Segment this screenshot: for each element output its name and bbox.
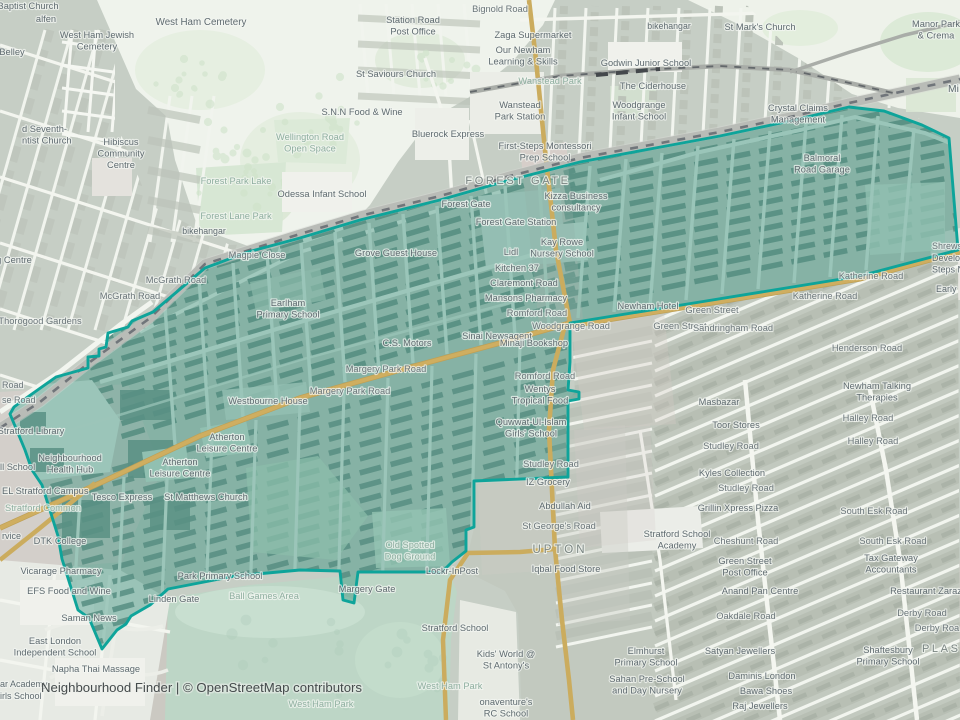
svg-text:Margery Gate: Margery Gate bbox=[339, 584, 396, 594]
svg-text:Old SpottedDog Ground: Old SpottedDog Ground bbox=[385, 540, 436, 561]
svg-text:St George's Road: St George's Road bbox=[522, 521, 596, 531]
svg-text:Mansons Pharmacy: Mansons Pharmacy bbox=[485, 293, 568, 303]
svg-text:Margery Park Road: Margery Park Road bbox=[346, 364, 427, 374]
svg-text:Restaurant Zaraz: Restaurant Zaraz bbox=[890, 586, 960, 596]
svg-text:ShaftesburyPrimary School: ShaftesburyPrimary School bbox=[856, 645, 919, 666]
svg-text:Tesco Express: Tesco Express bbox=[92, 492, 153, 502]
svg-text:Oakdale Road: Oakdale Road bbox=[716, 611, 775, 621]
svg-text:Daminis London: Daminis London bbox=[728, 671, 795, 681]
svg-text:Bignold Road: Bignold Road bbox=[472, 4, 528, 14]
svg-text:St Saviours Church: St Saviours Church bbox=[356, 69, 436, 79]
svg-text:Park Primary School: Park Primary School bbox=[178, 571, 263, 581]
svg-text:Newham Hotel: Newham Hotel bbox=[618, 301, 679, 311]
svg-text:West Ham Cemetery: West Ham Cemetery bbox=[156, 17, 247, 28]
svg-text:Halley Road: Halley Road bbox=[848, 436, 899, 446]
svg-text:Toor Stores: Toor Stores bbox=[712, 420, 760, 430]
svg-text:Forest Gate Station: Forest Gate Station bbox=[476, 217, 557, 227]
svg-text:Tax GatewayAccountants: Tax GatewayAccountants bbox=[864, 553, 918, 574]
svg-text:irls School: irls School bbox=[0, 691, 42, 701]
svg-text:Bawa Shoes: Bawa Shoes bbox=[740, 686, 793, 696]
svg-text:Forest Gate: Forest Gate bbox=[441, 199, 490, 209]
svg-text:Forest Lane Park: Forest Lane Park bbox=[200, 211, 272, 221]
svg-text:DevelopmSteps Nu: DevelopmSteps Nu bbox=[932, 253, 960, 274]
svg-text:Napha Thai Massage: Napha Thai Massage bbox=[52, 664, 140, 674]
svg-text:Sahan Pre-Schooland Day Nurser: Sahan Pre-Schooland Day Nursery bbox=[609, 674, 684, 695]
svg-text:g Centre: g Centre bbox=[0, 255, 32, 265]
svg-text:Saman News: Saman News bbox=[61, 613, 117, 623]
svg-text:bikehangar: bikehangar bbox=[647, 21, 691, 31]
svg-text:South Esk Road: South Esk Road bbox=[840, 506, 907, 516]
svg-text:Thorogood Gardens: Thorogood Gardens bbox=[0, 316, 82, 326]
svg-text:NeighbourhoodHealth Hub: NeighbourhoodHealth Hub bbox=[38, 453, 102, 474]
svg-text:bikehangar: bikehangar bbox=[182, 226, 226, 236]
svg-text:Cheshunt Road: Cheshunt Road bbox=[714, 536, 779, 546]
svg-text:ll School: ll School bbox=[0, 462, 35, 472]
svg-text:se Road: se Road bbox=[2, 395, 36, 405]
svg-text:Neighbourhood Finder | © OpenS: Neighbourhood Finder | © OpenStreetMap c… bbox=[41, 680, 362, 695]
svg-text:Romford Road: Romford Road bbox=[507, 308, 567, 318]
svg-text:Kyles Collection: Kyles Collection bbox=[699, 468, 765, 478]
svg-text:Stratford Common: Stratford Common bbox=[5, 503, 81, 513]
svg-text:EFS Food and Wine: EFS Food and Wine bbox=[27, 586, 111, 596]
svg-text:Baptist Church: Baptist Church bbox=[0, 1, 58, 11]
svg-text:West Ham Park: West Ham Park bbox=[289, 699, 354, 709]
svg-text:Grillin Xpress Pizza: Grillin Xpress Pizza bbox=[698, 503, 779, 513]
svg-text:Magpie Close: Magpie Close bbox=[229, 250, 286, 260]
svg-text:Minaji Bookshop: Minaji Bookshop bbox=[500, 338, 568, 348]
svg-text:Quwwat-Ul-IslamGirls' School: Quwwat-Ul-IslamGirls' School bbox=[496, 417, 567, 438]
svg-text:Iqbal Food Store: Iqbal Food Store bbox=[532, 564, 601, 574]
svg-text:Ball Games Area: Ball Games Area bbox=[229, 591, 300, 601]
svg-text:Lockr-InPost: Lockr-InPost bbox=[426, 566, 479, 576]
svg-text:Vicarage Pharmacy: Vicarage Pharmacy bbox=[21, 566, 102, 576]
svg-text:Wellington RoadOpen Space: Wellington RoadOpen Space bbox=[276, 132, 344, 153]
svg-text:Sandringham Road: Sandringham Road bbox=[693, 323, 773, 333]
svg-text:Mi: Mi bbox=[948, 84, 959, 95]
svg-text:Green Street: Green Street bbox=[685, 305, 739, 315]
svg-text:Kids' World @St Antony's: Kids' World @St Antony's bbox=[477, 649, 536, 670]
svg-text:Abdullah Aid: Abdullah Aid bbox=[539, 501, 591, 511]
svg-text:Masbazar: Masbazar bbox=[699, 397, 740, 407]
svg-text:PLASHE: PLASHE bbox=[922, 643, 960, 655]
svg-text:Odessa Infant School: Odessa Infant School bbox=[278, 189, 367, 199]
svg-text:Kitchen 37: Kitchen 37 bbox=[495, 263, 539, 273]
svg-text:IZ Grocery: IZ Grocery bbox=[526, 477, 570, 487]
svg-text:onaventure'sRC School: onaventure'sRC School bbox=[480, 697, 533, 718]
svg-text:alfen: alfen bbox=[36, 14, 56, 24]
svg-text:rvice: rvice bbox=[2, 531, 21, 541]
svg-text:Linden Gate: Linden Gate bbox=[149, 594, 200, 604]
svg-text:Romford Road: Romford Road bbox=[515, 371, 575, 381]
svg-text:St Matthews Church: St Matthews Church bbox=[164, 492, 248, 502]
svg-text:C.S. Motors: C.S. Motors bbox=[382, 338, 431, 348]
svg-text:Early: Early bbox=[936, 284, 957, 294]
svg-text:Derby Road: Derby Road bbox=[897, 608, 947, 618]
svg-text:Road: Road bbox=[2, 380, 24, 390]
svg-text:Studley Road: Studley Road bbox=[703, 441, 759, 451]
svg-text:The Ciderhouse: The Ciderhouse bbox=[620, 81, 686, 91]
svg-text:Derby Roa: Derby Roa bbox=[915, 623, 960, 633]
svg-text:Kizza Businessconsultancy: Kizza Businessconsultancy bbox=[544, 191, 607, 212]
svg-text:Anand Pan Centre: Anand Pan Centre bbox=[722, 586, 799, 596]
svg-text:Woodgrange Road: Woodgrange Road bbox=[532, 321, 610, 331]
svg-text:d Seventh-ntist Church: d Seventh-ntist Church bbox=[22, 124, 72, 145]
svg-text:Godwin Junior School: Godwin Junior School bbox=[601, 58, 691, 68]
svg-text:WansteadPark Station: WansteadPark Station bbox=[495, 100, 546, 121]
svg-text:Manor Park& Crema: Manor Park& Crema bbox=[912, 19, 960, 40]
svg-text:West Ham Park: West Ham Park bbox=[418, 681, 483, 691]
svg-text:Raj Jewellers: Raj Jewellers bbox=[732, 701, 788, 711]
svg-text:Henderson Road: Henderson Road bbox=[832, 343, 902, 353]
svg-text:EL Stratford Campus: EL Stratford Campus bbox=[2, 486, 89, 496]
svg-text:Grove Guest House: Grove Guest House bbox=[355, 248, 437, 258]
svg-text:Green StreetPost Office: Green StreetPost Office bbox=[718, 556, 772, 577]
svg-text:Claremont Road: Claremont Road bbox=[490, 278, 558, 288]
svg-text:Westbourne House: Westbourne House bbox=[228, 396, 307, 406]
svg-text:Lidl: Lidl bbox=[504, 247, 518, 257]
svg-text:Satyan Jewellers: Satyan Jewellers bbox=[705, 646, 776, 656]
svg-text:Stratford School: Stratford School bbox=[422, 623, 489, 633]
svg-text:Studley Road: Studley Road bbox=[718, 483, 774, 493]
svg-text:DTK College: DTK College bbox=[34, 536, 87, 546]
svg-text:Crystal ClaimsManagement: Crystal ClaimsManagement bbox=[768, 103, 828, 124]
svg-text:Studley Road: Studley Road bbox=[523, 459, 579, 469]
svg-text:WoodgrangeInfant School: WoodgrangeInfant School bbox=[612, 100, 666, 121]
svg-text:Zaga Supermarket: Zaga Supermarket bbox=[495, 30, 572, 40]
svg-text:McGrath Road: McGrath Road bbox=[146, 275, 206, 285]
svg-text:Belley: Belley bbox=[0, 47, 25, 57]
svg-text:St Mark's Church: St Mark's Church bbox=[724, 22, 795, 32]
svg-text:Katherine Road: Katherine Road bbox=[839, 271, 904, 281]
svg-text:Our NewhamLearning & Skills: Our NewhamLearning & Skills bbox=[488, 45, 558, 66]
svg-text:South Esk Road: South Esk Road bbox=[859, 536, 926, 546]
svg-text:Katherine Road: Katherine Road bbox=[793, 291, 858, 301]
svg-text:Halley Road: Halley Road bbox=[843, 413, 894, 423]
svg-text:Stratford Library: Stratford Library bbox=[0, 426, 65, 436]
svg-text:FOREST GATE: FOREST GATE bbox=[465, 175, 570, 187]
svg-text:Station RoadPost Office: Station RoadPost Office bbox=[386, 15, 440, 36]
svg-text:McGrath Road: McGrath Road bbox=[100, 291, 160, 301]
svg-text:Bluerock Express: Bluerock Express bbox=[412, 129, 485, 139]
svg-text:S.N.N Food & Wine: S.N.N Food & Wine bbox=[321, 107, 402, 117]
svg-text:UPTON: UPTON bbox=[532, 544, 587, 556]
svg-text:Margery Park Road: Margery Park Road bbox=[310, 386, 391, 396]
svg-text:Wanstead Park: Wanstead Park bbox=[518, 76, 582, 86]
svg-text:Forest Park Lake: Forest Park Lake bbox=[201, 176, 272, 186]
svg-text:Shrewsb: Shrewsb bbox=[932, 241, 960, 251]
